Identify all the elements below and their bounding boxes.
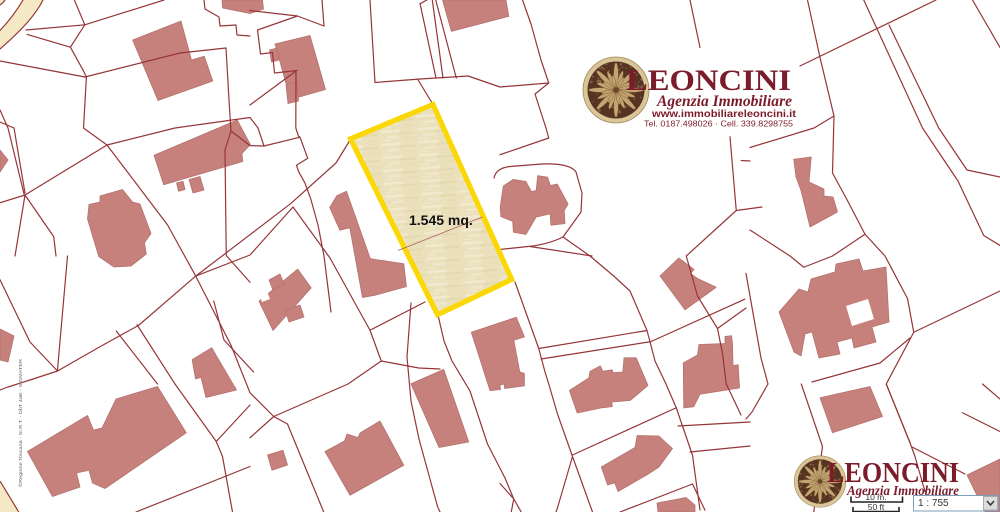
- svg-text:1 : 755: 1 : 755: [918, 498, 949, 509]
- svg-text:Tel. 0187.498026 · Cell. 339: Tel. 0187.498026 · Cell. 339.8298755: [644, 120, 794, 129]
- svg-text:1.545 mq.: 1.545 mq.: [409, 212, 473, 228]
- svg-text:50 ft: 50 ft: [868, 502, 885, 512]
- svg-text:www.immobiliareleoncini.it: www.immobiliareleoncini.it: [651, 108, 797, 120]
- svg-text:©Regione Toscana - Si.R.T. - D: ©Regione Toscana - Si.R.T. - DbT 4aE - S…: [17, 358, 23, 487]
- svg-text:10 m.: 10 m.: [865, 492, 886, 502]
